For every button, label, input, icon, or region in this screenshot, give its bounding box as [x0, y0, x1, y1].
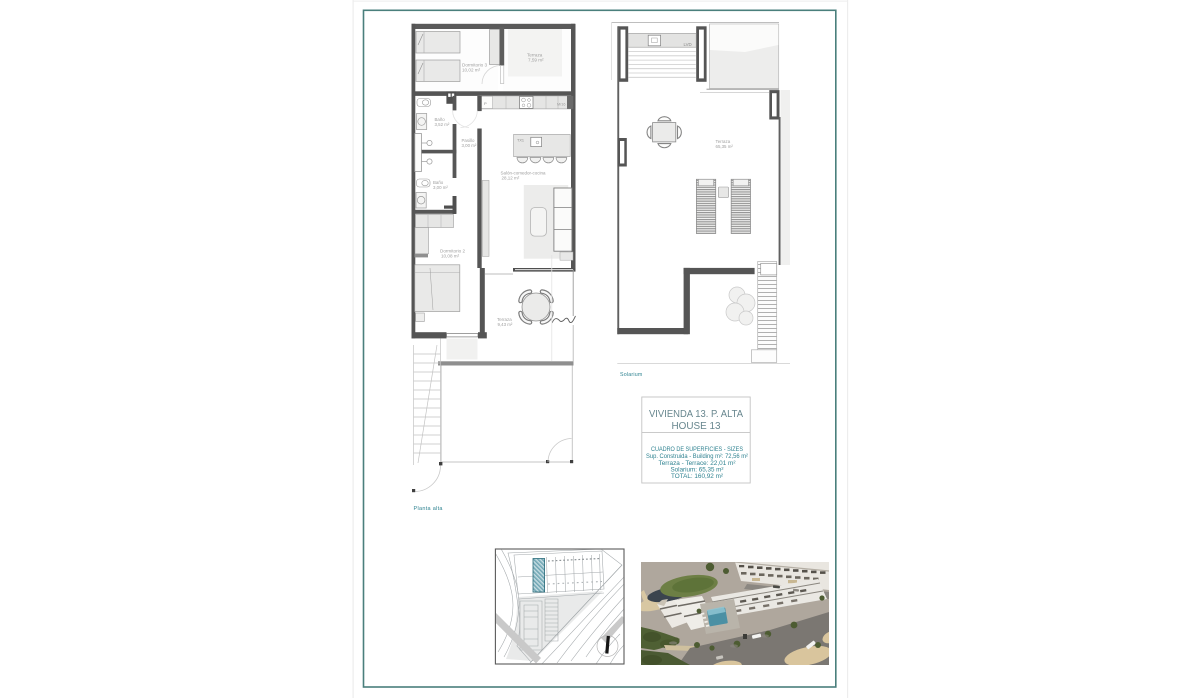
svg-text:Solarium: Solarium: [620, 372, 643, 378]
svg-text:TX1: TX1: [517, 139, 524, 143]
svg-text:TOTAL: 160,92 m²: TOTAL: 160,92 m²: [671, 473, 723, 480]
svg-text:9,43 m²: 9,43 m²: [498, 322, 513, 327]
svg-text:28,12 m²: 28,12 m²: [502, 175, 520, 180]
svg-text:LVD: LVD: [684, 42, 692, 47]
svg-text:HOUSE 13: HOUSE 13: [672, 421, 721, 432]
svg-text:Sup. Construida - Building m²: Sup. Construida - Building m²: 72,56 m²: [646, 453, 748, 460]
svg-text:65,35 m²: 65,35 m²: [716, 144, 734, 149]
svg-text:10,02 m²: 10,02 m²: [462, 68, 481, 73]
svg-text:P: P: [484, 101, 487, 106]
svg-text:CUADRO DE SUPERFICIES - SIZES: CUADRO DE SUPERFICIES - SIZES: [651, 446, 743, 453]
svg-text:3,00 m²: 3,00 m²: [433, 185, 448, 190]
svg-text:M/16: M/16: [557, 103, 565, 107]
svg-text:VIVIENDA 13. P. ALTA: VIVIENDA 13. P. ALTA: [649, 409, 743, 420]
svg-text:3,00 m²: 3,00 m²: [462, 143, 477, 148]
svg-text:3,52 m²: 3,52 m²: [435, 122, 450, 127]
svg-text:7,59 m²: 7,59 m²: [528, 58, 544, 63]
svg-text:10,08 m²: 10,08 m²: [441, 254, 460, 259]
svg-text:Planta alta: Planta alta: [414, 506, 444, 512]
